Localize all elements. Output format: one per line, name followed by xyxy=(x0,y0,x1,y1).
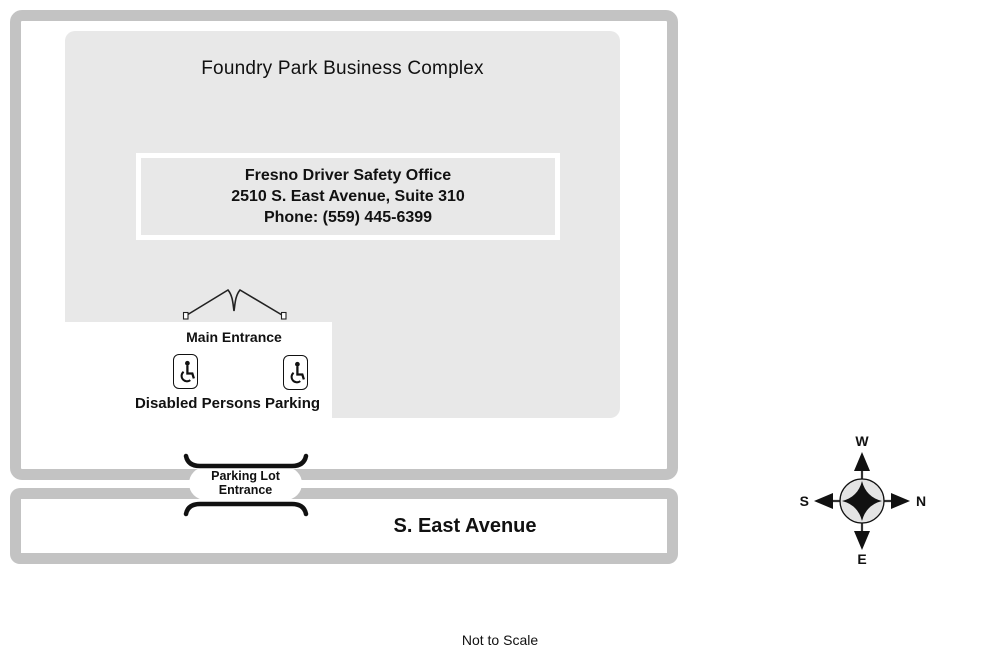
compass-arrow-down-icon xyxy=(854,531,870,550)
compass-arrow-right-icon xyxy=(891,493,910,509)
street-name-label: S. East Avenue xyxy=(340,514,590,538)
compass-label-bottom: E xyxy=(857,551,866,567)
disabled-parking-sign-left xyxy=(173,354,198,389)
compass-label-top: W xyxy=(855,433,869,449)
compass-label-left: S xyxy=(800,493,809,509)
office-info-box: Fresno Driver Safety Office 2510 S. East… xyxy=(136,153,560,240)
wheelchair-icon xyxy=(176,358,195,386)
wheelchair-icon xyxy=(286,359,305,387)
complex-title: Foundry Park Business Complex xyxy=(65,58,620,80)
disabled-parking-label: Disabled Persons Parking xyxy=(105,395,350,412)
disabled-parking-sign-right xyxy=(283,355,308,390)
office-address: 2510 S. East Avenue, Suite 310 xyxy=(141,186,555,207)
location-map: Foundry Park Business Complex Fresno Dri… xyxy=(0,0,987,664)
entrance-gap-brackets-icon xyxy=(180,450,312,520)
compass-rose: W N S E xyxy=(795,428,930,570)
office-phone: Phone: (559) 445-6399 xyxy=(141,207,555,228)
compass-arrow-left-icon xyxy=(814,493,833,509)
compass-arrow-up-icon xyxy=(854,452,870,471)
main-entrance-label: Main Entrance xyxy=(164,329,304,345)
office-name: Fresno Driver Safety Office xyxy=(141,165,555,186)
entrance-canopy-icon xyxy=(175,278,295,326)
scale-note: Not to Scale xyxy=(400,632,600,648)
compass-label-right: N xyxy=(916,493,926,509)
